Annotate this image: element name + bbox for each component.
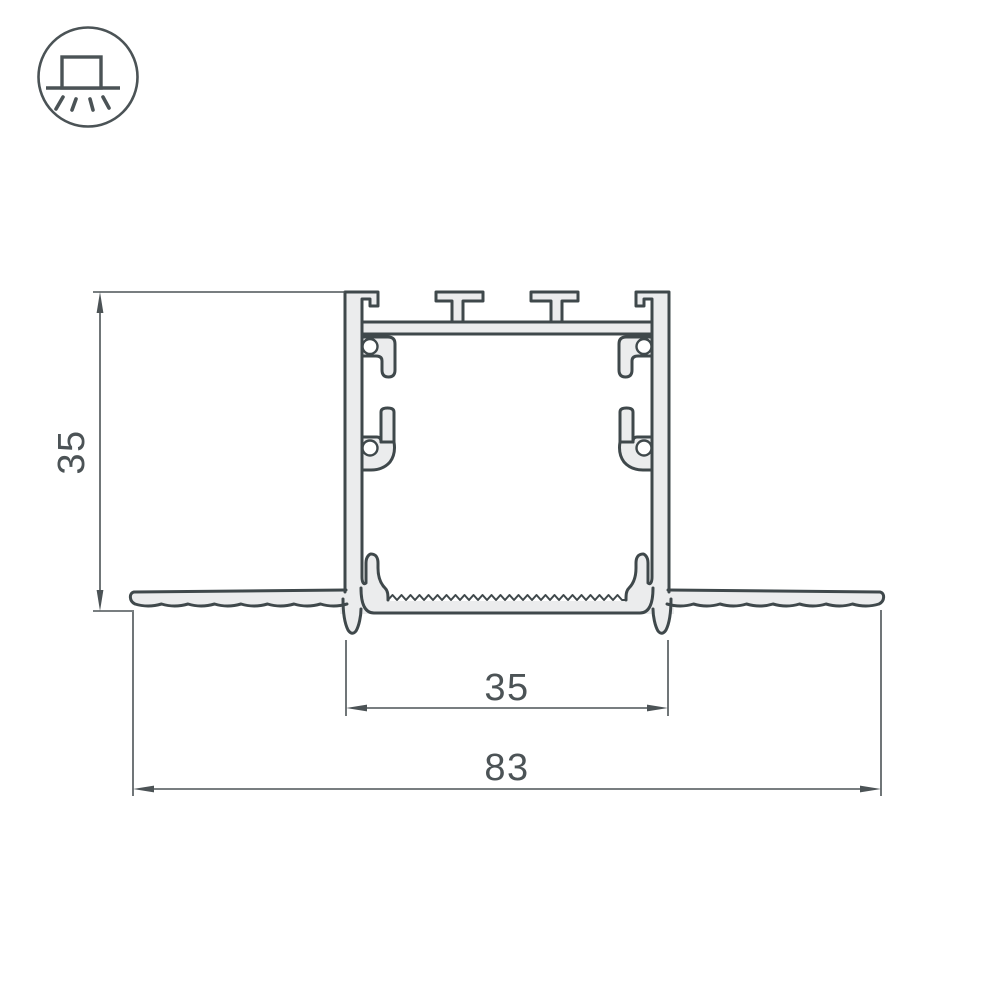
profile-cross-section	[0, 0, 1000, 1000]
floor-serration	[388, 595, 626, 600]
profile-outlines	[130, 292, 883, 633]
icon-light-rays	[56, 97, 109, 110]
technical-drawing-page: 35 35 83	[0, 0, 1000, 1000]
arrowhead-right	[647, 705, 668, 712]
arrowhead-down	[97, 590, 104, 611]
icon-fixture-box	[62, 57, 101, 88]
dimension-height: 35	[51, 292, 345, 611]
dimension-label-height: 35	[51, 429, 93, 474]
profile-hatching	[0, 0, 1000, 1000]
arrowhead-up	[97, 292, 104, 313]
dimension-inner-width: 35	[346, 640, 668, 716]
technical-drawing-canvas: 35 35 83	[0, 0, 1000, 1000]
dimension-label-inner-width: 35	[484, 667, 529, 709]
keyhole-cutouts	[363, 339, 652, 456]
arrowhead-left	[133, 786, 154, 793]
dimension-label-overall-width: 83	[484, 747, 529, 789]
arrowhead-right	[860, 786, 881, 793]
arrowhead-left	[346, 705, 367, 712]
recessed-light-icon	[39, 28, 138, 127]
profile-material-fill	[130, 292, 883, 633]
dimension-annotations: 35 35 83	[51, 292, 881, 796]
